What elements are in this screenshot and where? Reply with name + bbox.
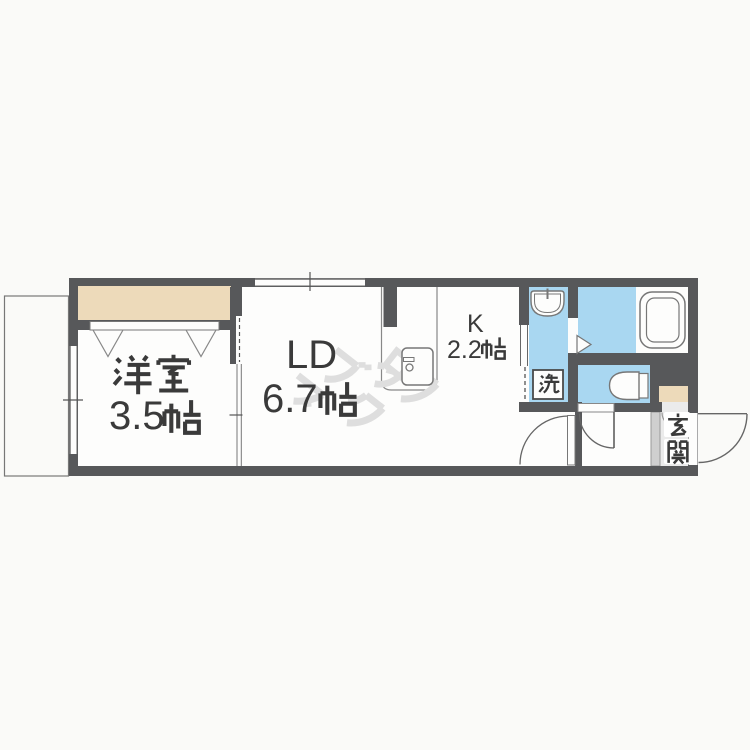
svg-text:6.7: 6.7 — [262, 377, 318, 421]
svg-text:LD: LD — [286, 333, 337, 377]
svg-text:2.2: 2.2 — [447, 336, 482, 364]
svg-text:K: K — [467, 310, 484, 338]
svg-text:3.5: 3.5 — [109, 394, 165, 438]
